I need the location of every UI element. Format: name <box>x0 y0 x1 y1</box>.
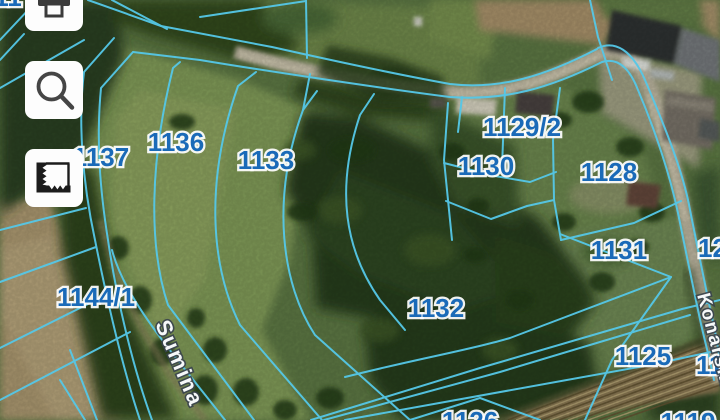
svg-text:1125: 1125 <box>615 341 671 371</box>
svg-text:11: 11 <box>0 0 22 12</box>
svg-text:1126: 1126 <box>442 406 498 420</box>
svg-text:1132: 1132 <box>408 293 464 323</box>
svg-text:1136: 1136 <box>148 127 204 157</box>
svg-text:1131: 1131 <box>591 235 647 265</box>
svg-text:12: 12 <box>698 233 720 263</box>
svg-text:1144/1: 1144/1 <box>57 282 135 312</box>
svg-text:1129/2: 1129/2 <box>483 112 561 142</box>
svg-text:1130: 1130 <box>458 151 514 181</box>
svg-text:1128: 1128 <box>581 157 637 187</box>
svg-text:1119: 1119 <box>661 407 716 420</box>
svg-text:1133: 1133 <box>238 145 294 175</box>
